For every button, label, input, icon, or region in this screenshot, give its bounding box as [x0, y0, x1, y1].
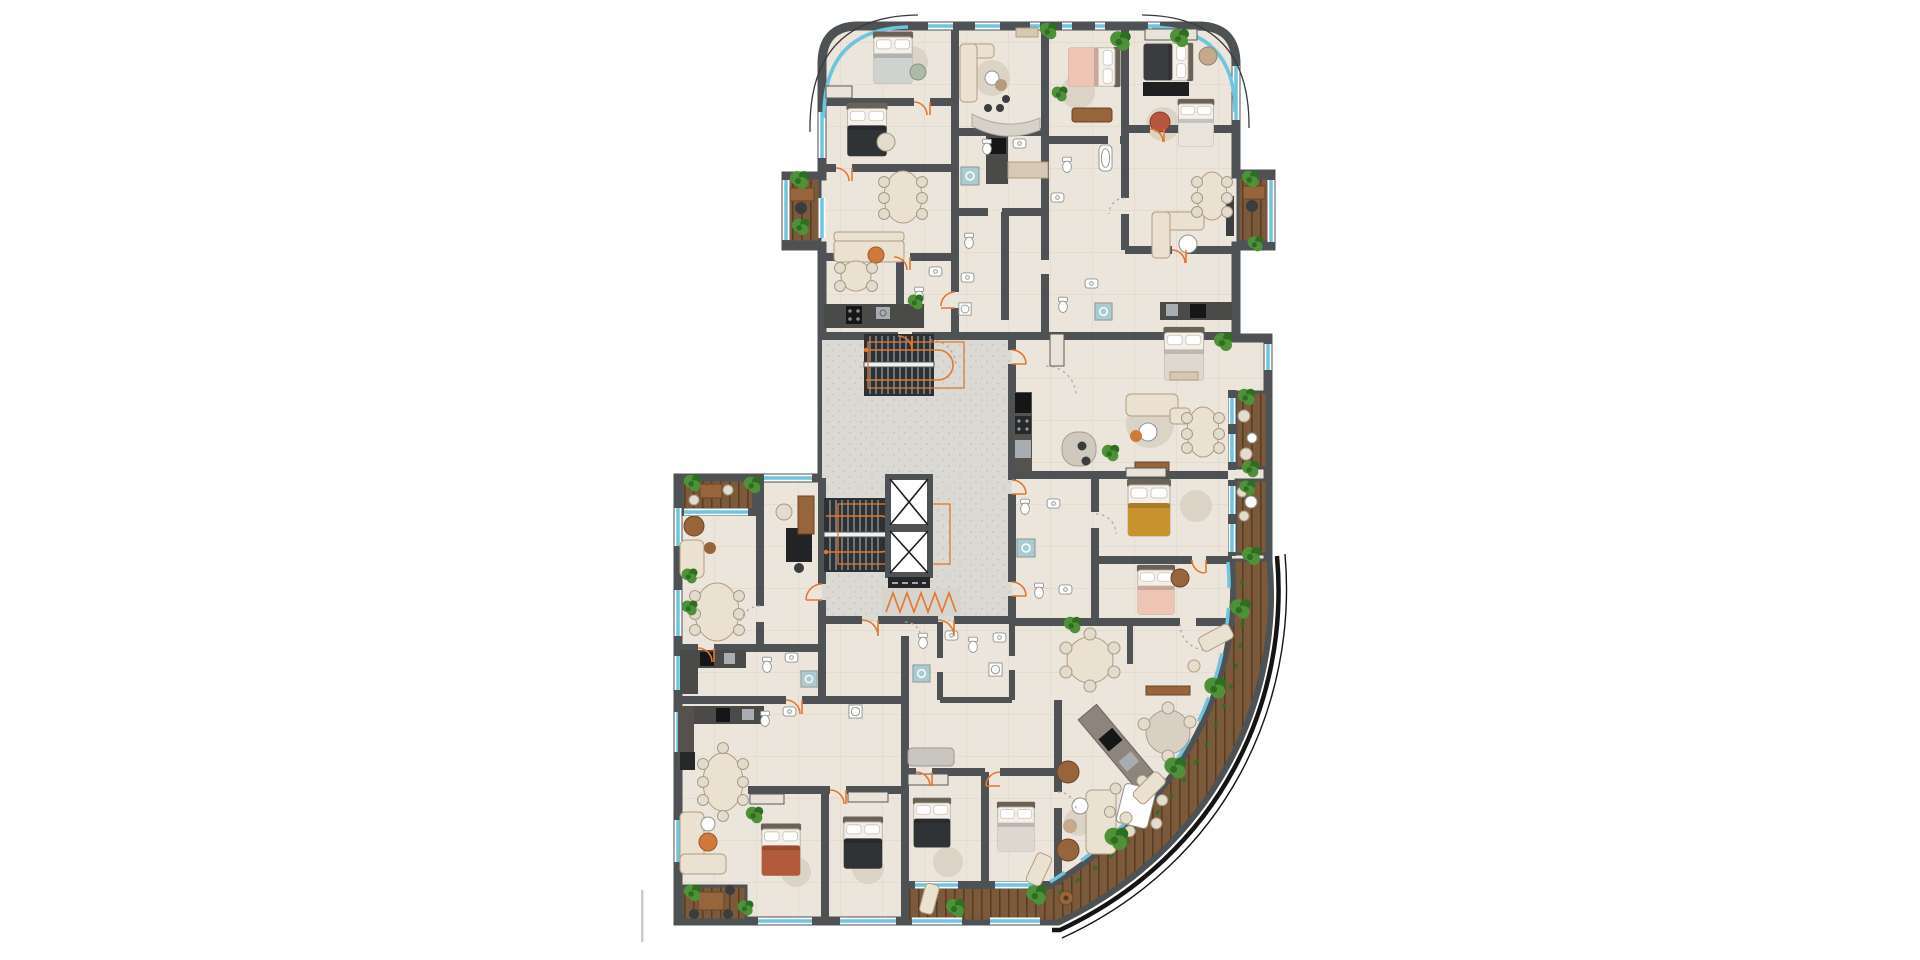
dining-top-right — [1192, 172, 1233, 220]
bench-pink-bedroom — [1072, 108, 1112, 122]
bed-pink-lower — [1137, 565, 1175, 614]
bed-bottom-middle-2 — [997, 802, 1035, 852]
dining-middle-right — [1182, 407, 1225, 457]
dining-lower-left — [690, 583, 745, 641]
kitchen-top-right — [1160, 302, 1232, 320]
dining-top-left — [879, 171, 928, 223]
bed-rust-bottom-left — [761, 824, 801, 876]
bed-top-left-1 — [873, 32, 913, 84]
floorplan-canvas — [0, 0, 1920, 960]
chair-top-left-bedroom — [910, 64, 926, 80]
dining-round-top-left — [835, 261, 878, 292]
floorplan-svg — [0, 0, 1920, 960]
entry-zigzag-mat — [882, 588, 960, 616]
chair-top-left-2 — [877, 133, 895, 151]
sofa-top-left — [834, 232, 904, 263]
bed-bottom-middle-1 — [913, 798, 951, 848]
scale-marker-line — [641, 890, 644, 942]
bed-top-right-2 — [1178, 99, 1215, 146]
bed-pink-top-middle — [1068, 47, 1120, 87]
console-bottom-right — [1146, 686, 1190, 695]
kitchen-top-left — [824, 304, 924, 328]
elevator-shafts — [888, 477, 930, 589]
sofa-bottom-middle — [908, 748, 954, 766]
bed-dark-bottom-left — [843, 817, 883, 869]
bed-mustard — [1127, 479, 1171, 536]
armchair-pink-lower — [1171, 569, 1189, 587]
bed-top-right-1 — [1144, 43, 1194, 81]
